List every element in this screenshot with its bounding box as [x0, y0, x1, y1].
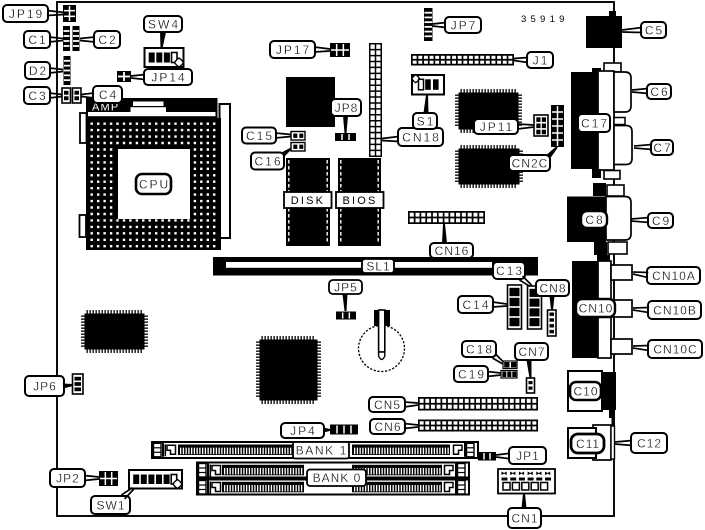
svg-text:C9: C9 — [652, 214, 671, 228]
svg-text:JP8: JP8 — [335, 101, 359, 115]
svg-text:CN10B: CN10B — [653, 303, 697, 317]
svg-text:CN16: CN16 — [435, 244, 470, 258]
svg-text:SW4: SW4 — [148, 17, 180, 31]
svg-text:SL1: SL1 — [366, 259, 390, 273]
svg-text:C19: C19 — [458, 367, 486, 381]
svg-text:BANK 0: BANK 0 — [313, 471, 362, 485]
svg-text:C13: C13 — [496, 264, 524, 278]
svg-text:SW1: SW1 — [96, 498, 125, 512]
svg-text:D2: D2 — [29, 64, 48, 78]
svg-text:CN5: CN5 — [374, 398, 401, 412]
svg-text:C16: C16 — [254, 154, 282, 168]
svg-text:C12: C12 — [637, 436, 662, 450]
svg-text:C2: C2 — [98, 33, 117, 47]
svg-text:JP4: JP4 — [290, 424, 317, 438]
svg-text:JP11: JP11 — [480, 120, 514, 134]
svg-text:C1: C1 — [28, 33, 47, 47]
svg-text:CN1: CN1 — [511, 511, 538, 525]
svg-text:3 5 9 1 9: 3 5 9 1 9 — [521, 14, 565, 25]
svg-text:C6: C6 — [650, 85, 669, 99]
svg-text:C4: C4 — [99, 88, 118, 102]
svg-text:JP7: JP7 — [451, 18, 478, 32]
svg-text:JP5: JP5 — [334, 280, 358, 294]
svg-text:CN8: CN8 — [539, 281, 566, 295]
svg-text:CN10A: CN10A — [652, 269, 696, 283]
svg-text:BIOS: BIOS — [342, 195, 377, 207]
svg-text:C3: C3 — [28, 89, 47, 103]
svg-text:J1: J1 — [533, 53, 550, 67]
svg-text:C7: C7 — [653, 141, 672, 155]
svg-text:JP19: JP19 — [9, 7, 44, 21]
svg-text:C17: C17 — [581, 116, 609, 130]
svg-text:C11: C11 — [576, 437, 600, 451]
svg-text:C14: C14 — [462, 298, 490, 312]
svg-text:C10: C10 — [573, 384, 598, 398]
svg-text:JP17: JP17 — [276, 43, 311, 57]
svg-text:DISK: DISK — [291, 195, 325, 207]
svg-text:JP2: JP2 — [56, 471, 80, 485]
svg-text:JP1: JP1 — [516, 449, 540, 463]
svg-text:C15: C15 — [246, 129, 274, 143]
svg-text:CN10C: CN10C — [653, 342, 697, 356]
svg-text:C8: C8 — [585, 213, 604, 227]
svg-text:C18: C18 — [466, 342, 494, 356]
svg-text:CN10: CN10 — [579, 301, 614, 315]
svg-text:JP14: JP14 — [151, 70, 186, 84]
svg-text:CPU: CPU — [139, 177, 170, 191]
svg-text:CN18: CN18 — [402, 130, 441, 144]
svg-text:C5: C5 — [645, 23, 664, 37]
svg-text:S1: S1 — [417, 114, 436, 128]
svg-text:JP6: JP6 — [33, 379, 57, 393]
svg-text:CN6: CN6 — [374, 420, 401, 434]
svg-text:CN7: CN7 — [518, 345, 545, 359]
svg-text:CN2C: CN2C — [512, 156, 549, 170]
svg-text:BANK 1: BANK 1 — [296, 444, 348, 458]
